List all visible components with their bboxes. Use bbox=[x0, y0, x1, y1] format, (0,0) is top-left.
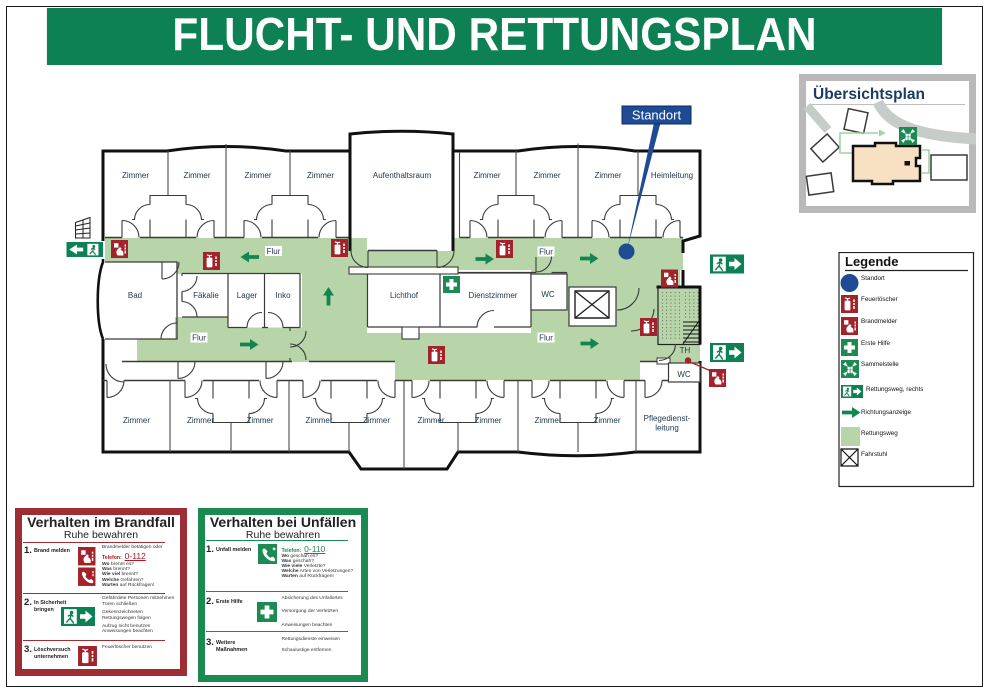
svg-text:Legende: Legende bbox=[845, 254, 898, 269]
svg-text:Standort: Standort bbox=[861, 275, 885, 282]
svg-text:WC: WC bbox=[677, 370, 691, 379]
svg-text:Lichthof: Lichthof bbox=[390, 291, 419, 300]
svg-text:Zimmer: Zimmer bbox=[244, 171, 271, 180]
svg-text:Fahrstuhl: Fahrstuhl bbox=[861, 451, 887, 458]
svg-text:Zimmer: Zimmer bbox=[533, 171, 560, 180]
svg-text:Erste Hilfe: Erste Hilfe bbox=[861, 340, 891, 347]
svg-text:Zimmer: Zimmer bbox=[593, 416, 620, 425]
svg-text:Aufenthaltsraum: Aufenthaltsraum bbox=[373, 171, 432, 180]
svg-text:leitung: leitung bbox=[655, 424, 679, 433]
svg-text:Flur: Flur bbox=[539, 334, 553, 343]
svg-text:Pflegedienst-: Pflegedienst- bbox=[644, 414, 691, 423]
svg-text:Zimmer: Zimmer bbox=[473, 171, 500, 180]
svg-text:Sammelstelle: Sammelstelle bbox=[861, 361, 899, 368]
svg-text:Flur: Flur bbox=[539, 248, 553, 257]
svg-text:TH: TH bbox=[680, 346, 691, 355]
svg-text:Zimmer: Zimmer bbox=[305, 416, 332, 425]
svg-text:Zimmer: Zimmer bbox=[183, 171, 210, 180]
svg-text:Brandmelder: Brandmelder bbox=[861, 318, 897, 325]
svg-text:Richtungsanzeige: Richtungsanzeige bbox=[861, 409, 912, 416]
svg-text:Zimmer: Zimmer bbox=[246, 416, 273, 425]
svg-text:Zimmer: Zimmer bbox=[474, 416, 501, 425]
svg-text:Zimmer: Zimmer bbox=[122, 171, 149, 180]
svg-text:WC: WC bbox=[541, 290, 555, 299]
svg-text:Zimmer: Zimmer bbox=[187, 416, 214, 425]
svg-text:Übersichtsplan: Übersichtsplan bbox=[813, 86, 925, 103]
svg-text:Standort: Standort bbox=[632, 108, 682, 123]
svg-text:Zimmer: Zimmer bbox=[123, 416, 150, 425]
svg-text:Lager: Lager bbox=[237, 291, 258, 300]
svg-text:Feuerlöscher: Feuerlöscher bbox=[861, 296, 898, 303]
svg-text:Inko: Inko bbox=[275, 291, 291, 300]
svg-text:Zimmer: Zimmer bbox=[417, 416, 444, 425]
svg-text:Heimleitung: Heimleitung bbox=[651, 171, 693, 180]
svg-text:Dienstzimmer: Dienstzimmer bbox=[469, 291, 518, 300]
svg-text:Zimmer: Zimmer bbox=[534, 416, 561, 425]
svg-text:Flur: Flur bbox=[267, 247, 281, 256]
svg-text:Fäkalie: Fäkalie bbox=[193, 291, 219, 300]
svg-text:Rettungsweg, rechts: Rettungsweg, rechts bbox=[866, 386, 923, 393]
svg-text:Zimmer: Zimmer bbox=[307, 171, 334, 180]
svg-text:Zimmer: Zimmer bbox=[363, 416, 390, 425]
svg-text:Flur: Flur bbox=[192, 334, 206, 343]
svg-text:Rettungsweg: Rettungsweg bbox=[861, 430, 898, 437]
svg-text:Bad: Bad bbox=[128, 291, 142, 300]
svg-text:Zimmer: Zimmer bbox=[594, 171, 621, 180]
